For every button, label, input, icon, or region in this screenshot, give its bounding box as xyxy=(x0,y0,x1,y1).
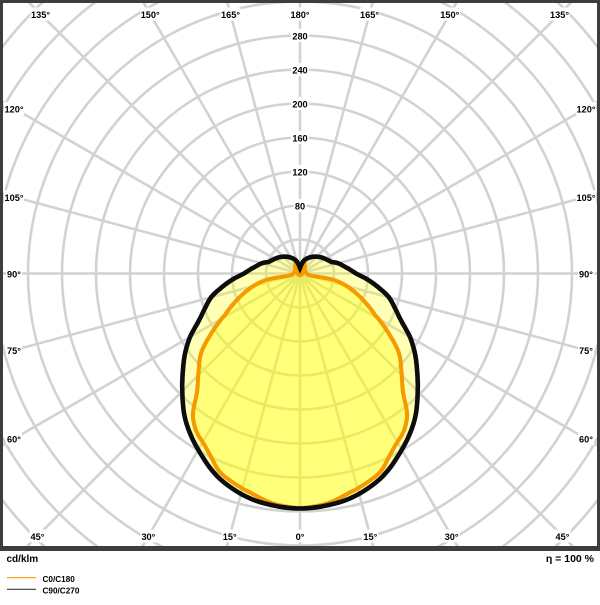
svg-text:80: 80 xyxy=(295,202,305,212)
svg-text:180°: 180° xyxy=(290,10,309,20)
svg-text:105°: 105° xyxy=(4,193,23,203)
svg-text:90°: 90° xyxy=(7,270,21,280)
svg-text:75°: 75° xyxy=(7,346,21,356)
svg-text:45°: 45° xyxy=(31,532,45,542)
svg-text:160: 160 xyxy=(292,134,307,144)
svg-text:150°: 150° xyxy=(141,10,160,20)
svg-text:165°: 165° xyxy=(360,10,379,20)
svg-text:30°: 30° xyxy=(445,532,459,542)
svg-text:0°: 0° xyxy=(296,532,305,542)
svg-text:75°: 75° xyxy=(579,346,593,356)
svg-text:C90/C270: C90/C270 xyxy=(43,587,80,596)
svg-text:135°: 135° xyxy=(31,10,50,20)
svg-text:60°: 60° xyxy=(579,435,593,445)
svg-text:135°: 135° xyxy=(550,10,569,20)
svg-text:120°: 120° xyxy=(576,104,595,114)
svg-text:η = 100 %: η = 100 % xyxy=(546,553,595,565)
svg-text:90°: 90° xyxy=(579,270,593,280)
svg-text:15°: 15° xyxy=(223,532,237,542)
svg-text:120: 120 xyxy=(292,168,307,178)
svg-text:150°: 150° xyxy=(440,10,459,20)
svg-text:C0/C180: C0/C180 xyxy=(43,575,76,584)
svg-text:cd/klm: cd/klm xyxy=(7,554,39,565)
svg-text:120°: 120° xyxy=(4,104,23,114)
svg-text:200: 200 xyxy=(292,100,307,110)
svg-text:15°: 15° xyxy=(363,532,377,542)
svg-text:30°: 30° xyxy=(141,532,155,542)
svg-text:240: 240 xyxy=(292,66,307,76)
svg-text:60°: 60° xyxy=(7,435,21,445)
svg-text:105°: 105° xyxy=(576,193,595,203)
svg-text:280: 280 xyxy=(292,32,307,42)
svg-text:45°: 45° xyxy=(556,532,570,542)
svg-text:165°: 165° xyxy=(221,10,240,20)
